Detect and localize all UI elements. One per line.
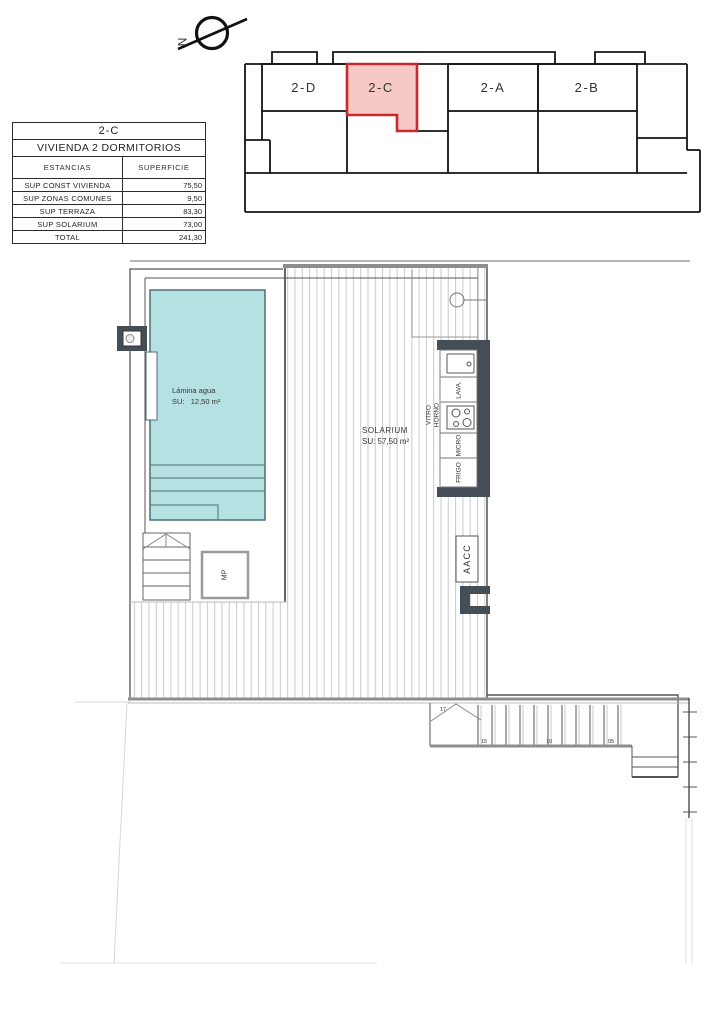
terrace-top-edge: [130, 261, 690, 266]
unit-2d-label: 2-D: [291, 80, 316, 95]
table-row: SUP SOLARIUM 73,00: [13, 218, 205, 231]
mp-label: MP: [222, 569, 229, 580]
building-outline: [245, 52, 700, 212]
sink: [447, 354, 474, 373]
row-label: SUP SOLARIUM: [13, 218, 123, 230]
table-row: SUP ZONAS COMUNES 9,50: [13, 192, 205, 205]
vitro-label: VITRO: [426, 405, 433, 425]
main-stair: [430, 698, 697, 818]
stair-number-10: 10: [546, 739, 552, 745]
row-value: 75,50: [123, 179, 205, 191]
solarium-label: SOLARIUM: [362, 426, 408, 435]
frigo-label: FRIGO: [456, 462, 463, 483]
wall-duct: [117, 326, 147, 351]
unit-2a-label: 2-A: [481, 80, 506, 95]
solarium-area-label: SU: 57,50 m²: [362, 437, 409, 446]
mp-box: MP: [202, 552, 248, 598]
row-label: SUP ZONAS COMUNES: [13, 192, 123, 204]
stair-number-15: 15: [481, 739, 487, 745]
pool-area-label: SU: 12,50 m²: [172, 397, 221, 406]
unit-2c-label: 2-C: [368, 80, 393, 95]
pool-skimmer: [146, 352, 157, 420]
key-plan: 2-D 2-C 2-A 2-B: [240, 40, 705, 220]
unit-2c-highlight: [347, 64, 417, 131]
main-floor-plan: Lámina agua SU: 12,50 m² SOLARIUM SU: 57…: [60, 255, 723, 1024]
table-row: SUP CONST VIVIENDA 75,50: [13, 179, 205, 192]
pool-label: Lámina agua: [172, 386, 216, 395]
col-header-estancias: ESTANCIAS: [13, 157, 123, 178]
area-table: 2-C VIVIENDA 2 DORMITORIOS ESTANCIAS SUP…: [12, 122, 206, 244]
stair-number-17: 17: [440, 707, 446, 713]
compass-north-label: N: [175, 38, 189, 47]
cooktop: [447, 406, 474, 429]
aacc-unit: AACC: [456, 536, 478, 582]
lava-label: LAVA.: [456, 381, 463, 399]
wall-tick-marks: [683, 712, 697, 812]
stair-number-05: 05: [608, 739, 614, 745]
property-lines: [60, 702, 692, 963]
area-table-header: ESTANCIAS SUPERFICIE: [13, 157, 205, 179]
pool: Lámina agua SU: 12,50 m²: [146, 290, 265, 520]
floor-plan-page: N 2-C VIVIENDA 2 DORMITORIOS ESTANCIAS S…: [0, 0, 723, 1024]
micro-label: MICRO: [456, 435, 463, 457]
col-header-superficie: SUPERFICIE: [123, 157, 205, 178]
unit-2b-label: 2-B: [575, 80, 600, 95]
terrace-bottom-edge: [128, 699, 689, 703]
table-row: SUP TERRAZA 83,30: [13, 205, 205, 218]
area-table-title: 2-C: [13, 123, 205, 140]
row-label: SUP TERRAZA: [13, 205, 123, 217]
horno-label: HORNO: [434, 403, 441, 427]
stair-break-arrow: [431, 704, 481, 721]
lower-deck-hatch: [130, 602, 287, 698]
row-value: 241,30: [123, 231, 205, 243]
table-row: TOTAL 241,30: [13, 231, 205, 243]
row-value: 9,50: [123, 192, 205, 204]
service-stair: [143, 533, 190, 600]
row-label: TOTAL: [13, 231, 123, 243]
row-label: SUP CONST VIVIENDA: [13, 179, 123, 191]
row-value: 83,30: [123, 205, 205, 217]
row-value: 73,00: [123, 218, 205, 230]
aacc-label: AACC: [462, 544, 472, 574]
area-table-subtitle: VIVIENDA 2 DORMITORIOS: [13, 140, 205, 157]
